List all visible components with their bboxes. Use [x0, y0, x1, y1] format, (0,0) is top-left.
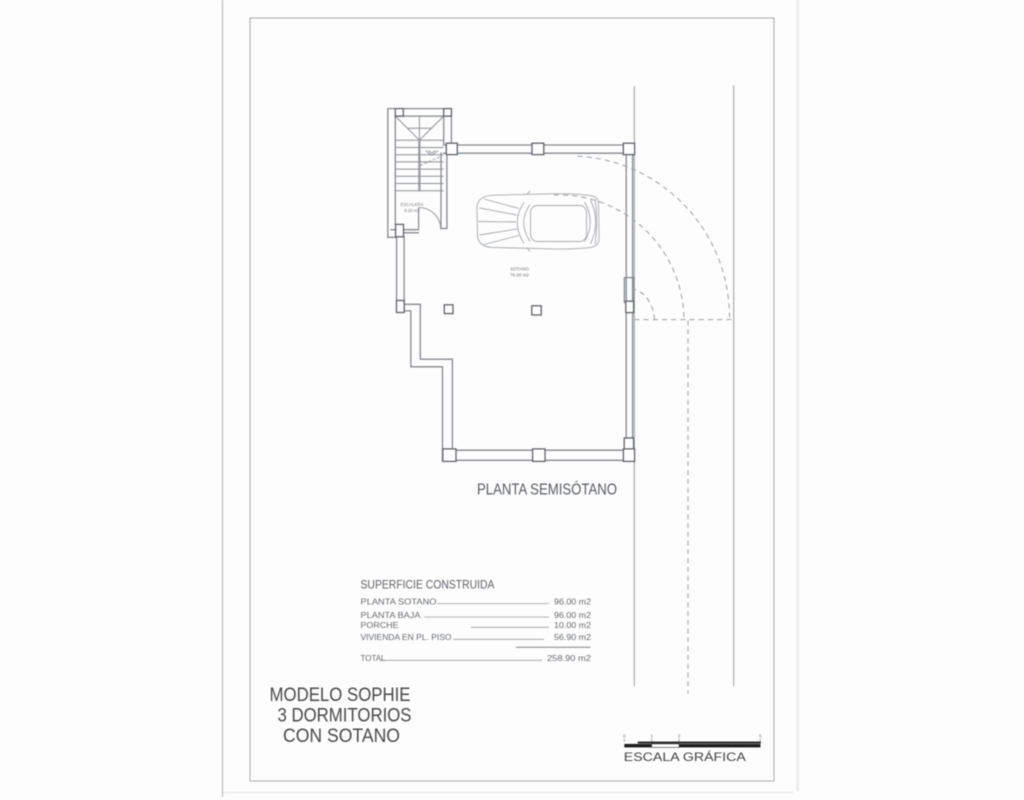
svg-text:5: 5: [759, 734, 762, 740]
svg-text:56.90 m2: 56.90 m2: [554, 632, 591, 642]
svg-text:76.00 m2: 76.00 m2: [510, 272, 529, 277]
svg-text:PORCHE: PORCHE: [361, 620, 399, 630]
svg-text:PLANTA BAJA: PLANTA BAJA: [361, 610, 422, 620]
svg-text:258.90 m2: 258.90 m2: [547, 653, 591, 663]
svg-text:PLANTA SEMISÓTANO: PLANTA SEMISÓTANO: [477, 482, 617, 499]
svg-text:2: 2: [678, 734, 681, 740]
svg-text:1: 1: [650, 734, 653, 740]
svg-text:SOTANO: SOTANO: [510, 267, 529, 272]
svg-text:ESCALERA: ESCALERA: [401, 202, 424, 207]
svg-text:3 DORMITORIOS: 3 DORMITORIOS: [278, 705, 412, 726]
svg-text:TOTAL: TOTAL: [361, 653, 386, 663]
svg-text:SUPERFICIE CONSTRUIDA: SUPERFICIE CONSTRUIDA: [361, 579, 495, 591]
svg-text:9.20 m2: 9.20 m2: [404, 208, 420, 213]
svg-text:MODELO SOPHIE: MODELO SOPHIE: [270, 685, 411, 706]
svg-text:VIVIENDA EN PL. PISO: VIVIENDA EN PL. PISO: [361, 632, 453, 642]
svg-text:CON SOTANO: CON SOTANO: [283, 726, 400, 747]
svg-text:ESCALA GRÁFICA: ESCALA GRÁFICA: [624, 749, 747, 764]
svg-text:PLANTA SOTANO: PLANTA SOTANO: [361, 596, 438, 606]
svg-text:10.00 m2: 10.00 m2: [554, 620, 591, 630]
svg-text:0: 0: [623, 734, 626, 740]
svg-text:96.00 m2: 96.00 m2: [554, 596, 591, 606]
svg-text:96.00 m2: 96.00 m2: [554, 610, 591, 620]
